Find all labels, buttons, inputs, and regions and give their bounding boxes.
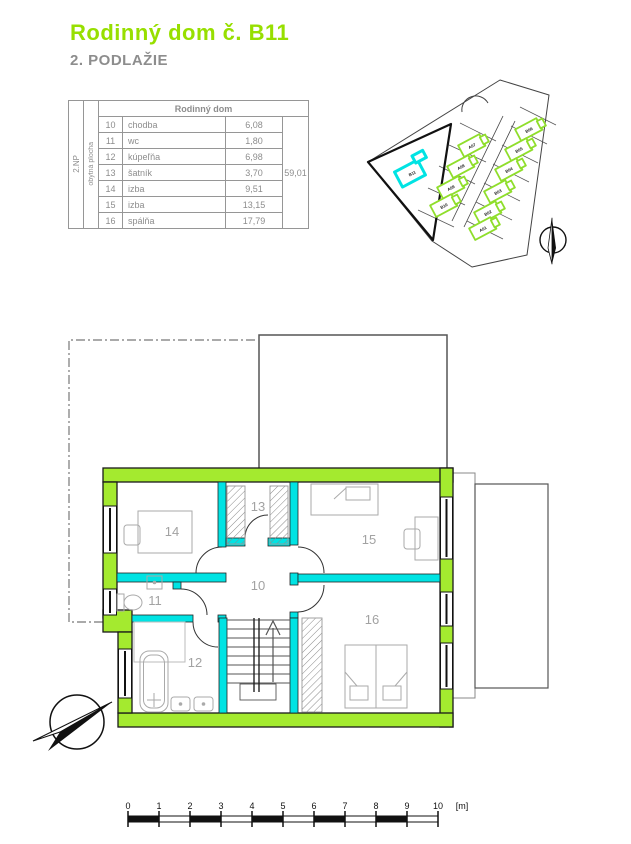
room-label-12: 12 (188, 655, 202, 670)
scale-tick-label: 0 (125, 801, 130, 811)
room-label-14: 14 (165, 524, 179, 539)
table-title: Rodinný dom (99, 101, 309, 117)
roof-outline (259, 335, 447, 472)
room-name: spálňa (123, 213, 226, 229)
scale-tick-label: 1 (156, 801, 161, 811)
door-room13 (245, 515, 268, 538)
site-house-B03: B03 (484, 178, 516, 203)
room-area: 13,15 (226, 197, 283, 213)
table-row: 13 šatník 3,70 (69, 165, 309, 181)
room-labels: 10 11 12 13 14 15 16 (148, 499, 379, 670)
table-row: 16 spálňa 17,79 (69, 213, 309, 229)
room-no: 15 (99, 197, 123, 213)
room-label-10: 10 (251, 578, 265, 593)
scale-tick-label: 8 (373, 801, 378, 811)
floor-plan: 10 11 12 13 14 15 16 (69, 335, 548, 727)
room-name: izba (123, 181, 226, 197)
balcony-outline (453, 473, 548, 698)
table-row: 12 kúpeľňa 6,98 (69, 149, 309, 165)
scale-tick-label: 10 (433, 801, 443, 811)
scale-tick-label: 9 (404, 801, 409, 811)
room-label-15: 15 (362, 532, 376, 547)
room-name: šatník (123, 165, 226, 181)
room-area: 1,80 (226, 133, 283, 149)
scale-tick-label: 4 (249, 801, 254, 811)
site-house-B06: B06 (515, 116, 547, 141)
north-compass-large-icon (33, 695, 112, 751)
toilet (117, 594, 142, 611)
room-no: 10 (99, 117, 123, 133)
room-area: 6,98 (226, 149, 283, 165)
staircase (227, 618, 290, 700)
door-room16 (298, 585, 324, 612)
room-area: 9,51 (226, 181, 283, 197)
site-houses: A07 A08 A09 B10 B06 B05 (430, 116, 547, 240)
total-area: 59,01 (283, 117, 309, 229)
room-name: wc (123, 133, 226, 149)
room-area: 17,79 (226, 213, 283, 229)
room-name: chodba (123, 117, 226, 133)
window (104, 589, 117, 615)
scale-numbers: 0 1 2 3 4 5 6 7 8 9 10 [m] (125, 801, 468, 811)
table-row: 15 izba 13,15 (69, 197, 309, 213)
page-title: Rodinný dom č. B11 (70, 20, 289, 46)
bathtub (140, 651, 168, 712)
room-no: 14 (99, 181, 123, 197)
double-bed (345, 645, 407, 708)
sink (194, 697, 213, 711)
room-label-16: 16 (365, 612, 379, 627)
table-floor-cell: 2.NP (69, 101, 84, 229)
table-row: 11 wc 1,80 (69, 133, 309, 149)
room-no: 11 (99, 133, 123, 149)
door-bathroom (193, 622, 218, 647)
table-row: 10 chodba 6,08 59,01 (69, 117, 309, 133)
site-house-B11-highlighted: B11 (392, 150, 434, 187)
window (441, 497, 453, 559)
page-subtitle: 2. PODLAŽIE (70, 52, 168, 69)
scale-tick-label: 5 (280, 801, 285, 811)
room-area: 6,08 (226, 117, 283, 133)
room-label-13: 13 (251, 499, 265, 514)
chair (404, 529, 420, 549)
wardrobes (227, 486, 322, 712)
window (104, 506, 117, 553)
room-area: 3,70 (226, 165, 283, 181)
room-label-11: 11 (148, 593, 162, 608)
room-name: kúpeľňa (123, 149, 226, 165)
window (441, 592, 453, 626)
room-no: 12 (99, 149, 123, 165)
scale-tick-label: 2 (187, 801, 192, 811)
scale-bar: 0 1 2 3 4 5 6 7 8 9 10 [m] (125, 801, 468, 827)
sink (171, 697, 190, 711)
table-row: 14 izba 9,51 (69, 181, 309, 197)
site-plan: A07 A08 A09 B10 B06 B05 (368, 80, 566, 267)
window (441, 643, 453, 689)
site-culdesac (462, 96, 488, 112)
site-house-A08: A08 (447, 153, 479, 178)
door-wc (181, 589, 207, 615)
table-area-type-cell: obytná plocha (84, 101, 99, 229)
single-bed (311, 484, 378, 515)
door-room14 (196, 547, 222, 573)
room-no: 13 (99, 165, 123, 181)
window (119, 649, 132, 698)
desk (415, 517, 438, 560)
north-compass-icon (540, 218, 566, 264)
door-room15 (298, 547, 324, 573)
scale-tick-label: 6 (311, 801, 316, 811)
room-area-table: 2.NP obytná plocha Rodinný dom 10 chodba… (68, 100, 309, 229)
room-name: izba (123, 197, 226, 213)
room-no: 16 (99, 213, 123, 229)
scale-tick-label: 7 (342, 801, 347, 811)
scale-tick-label: 3 (218, 801, 223, 811)
scale-unit-label: [m] (456, 801, 469, 811)
